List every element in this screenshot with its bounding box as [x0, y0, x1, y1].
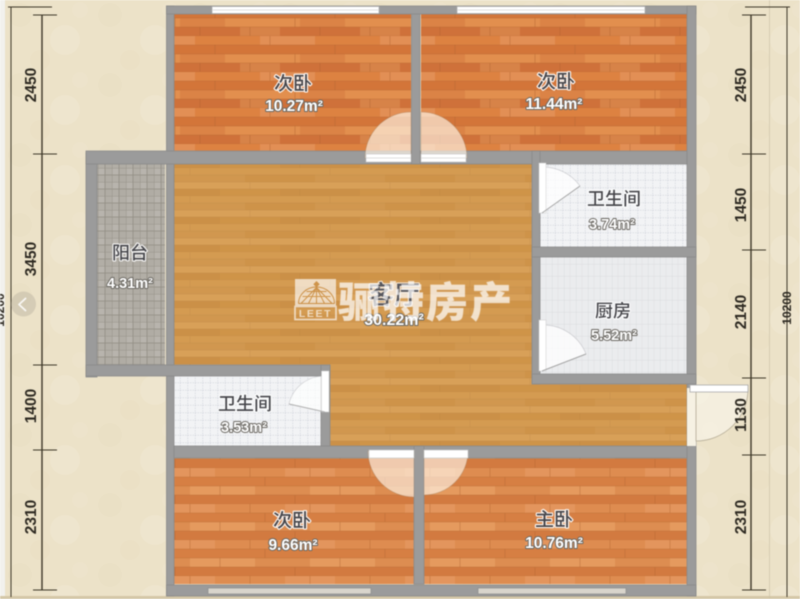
svg-text:3.74m²: 3.74m²	[589, 217, 635, 233]
svg-text:3450: 3450	[23, 242, 40, 276]
svg-text:10200: 10200	[780, 291, 794, 325]
svg-text:3.53m²: 3.53m²	[221, 420, 267, 436]
svg-text:1450: 1450	[733, 188, 750, 222]
svg-text:2310: 2310	[733, 500, 750, 534]
svg-text:10200: 10200	[0, 293, 7, 327]
svg-text:5.52m²: 5.52m²	[591, 328, 637, 344]
svg-text:11.44m²: 11.44m²	[526, 96, 583, 113]
svg-text:2310: 2310	[23, 500, 40, 534]
svg-text:9.66m²: 9.66m²	[268, 537, 317, 554]
svg-text:4.31m²: 4.31m²	[107, 276, 153, 292]
svg-text:2140: 2140	[733, 295, 750, 329]
svg-text:1400: 1400	[23, 389, 40, 423]
svg-text:10.27m²: 10.27m²	[265, 98, 323, 115]
svg-text:LEET: LEET	[299, 308, 332, 320]
svg-text:10.76m²: 10.76m²	[525, 535, 583, 552]
svg-text:2450: 2450	[733, 68, 750, 102]
svg-text:2450: 2450	[23, 68, 40, 102]
svg-text:1130: 1130	[733, 398, 750, 432]
